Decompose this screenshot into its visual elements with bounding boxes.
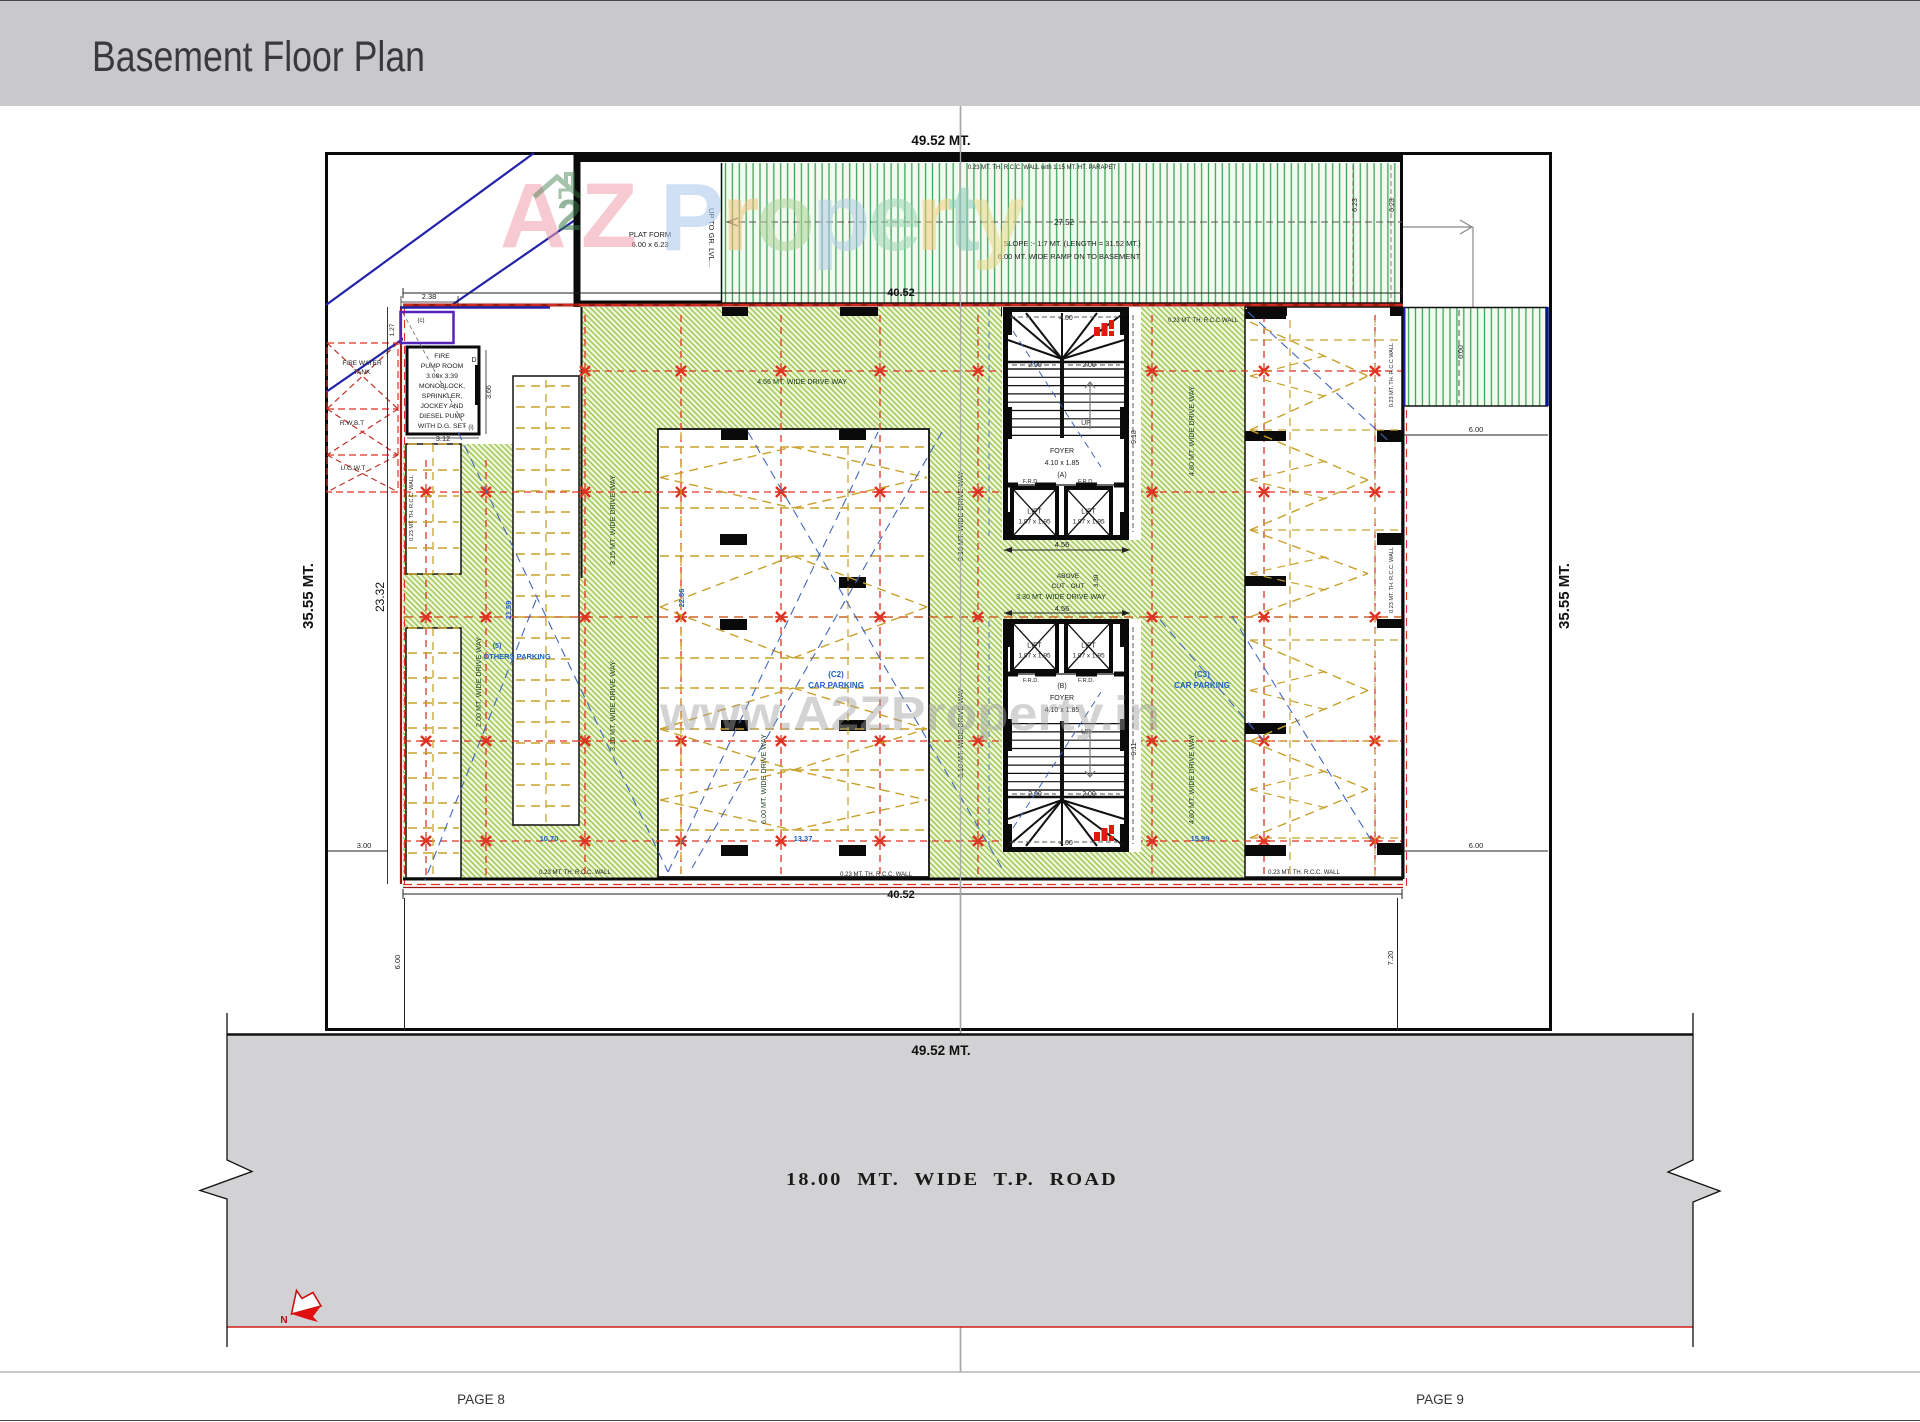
- svg-text:y: y: [972, 164, 1025, 271]
- svg-text:4.00: 4.00: [1059, 840, 1073, 847]
- svg-text:2.00: 2.00: [1082, 362, 1096, 369]
- svg-text:JOCKEY AND: JOCKEY AND: [421, 403, 464, 410]
- svg-text:P: P: [660, 164, 724, 271]
- svg-text:40.52: 40.52: [887, 889, 915, 901]
- svg-text:F.R.D.: F.R.D.: [1078, 678, 1094, 684]
- svg-text:2.00: 2.00: [1082, 791, 1096, 798]
- svg-text:6.00: 6.00: [1469, 841, 1484, 850]
- svg-text:9.11: 9.11: [1131, 742, 1138, 755]
- svg-text:3.66: 3.66: [486, 385, 493, 399]
- svg-text:U.G.W.T: U.G.W.T: [341, 465, 366, 472]
- svg-text:13.37: 13.37: [794, 834, 813, 843]
- svg-text:o: o: [756, 164, 815, 271]
- svg-text:1.27: 1.27: [389, 323, 396, 336]
- svg-text:(c): (c): [418, 318, 425, 324]
- svg-text:3.12: 3.12: [436, 434, 451, 443]
- svg-text:0.23 MT. TH. R.C.C. WALL: 0.23 MT. TH. R.C.C. WALL: [539, 870, 611, 876]
- svg-text:0.23 MT. TH. R.C.C. WALL: 0.23 MT. TH. R.C.C. WALL: [1268, 870, 1340, 876]
- svg-text:3.15 MT. WIDE DRIVE WAY: 3.15 MT. WIDE DRIVE WAY: [608, 475, 617, 565]
- svg-text:4.56: 4.56: [1055, 604, 1070, 613]
- svg-text:(i): (i): [468, 425, 473, 431]
- svg-text:4.60 MT. WIDE DRIVE WAY: 4.60 MT. WIDE DRIVE WAY: [1187, 386, 1196, 476]
- svg-text:1.97 x 1.95: 1.97 x 1.95: [1072, 519, 1105, 526]
- svg-text:PAGE 8: PAGE 8: [457, 1392, 505, 1407]
- svg-text:6.00: 6.00: [1458, 345, 1465, 359]
- svg-text:23.32: 23.32: [373, 582, 387, 612]
- svg-text:ABOVE: ABOVE: [1057, 573, 1080, 580]
- svg-text:FIRE WATER: FIRE WATER: [342, 360, 382, 367]
- svg-text:3.00x 3.39: 3.00x 3.39: [426, 373, 458, 380]
- svg-text:F.R.D.: F.R.D.: [1078, 479, 1094, 485]
- svg-text:WITH D.G. SET: WITH D.G. SET: [418, 423, 466, 430]
- svg-text:27.52: 27.52: [1054, 218, 1075, 227]
- svg-text:e: e: [868, 164, 921, 271]
- svg-text:3.30 MT. WIDE DRIVE WAY: 3.30 MT. WIDE DRIVE WAY: [1016, 592, 1106, 601]
- svg-text:21.59: 21.59: [504, 601, 513, 620]
- svg-text:4.00: 4.00: [1059, 315, 1073, 322]
- svg-text:Z: Z: [581, 165, 637, 267]
- svg-text:15.99: 15.99: [1191, 834, 1210, 843]
- svg-text:UP: UP: [1081, 420, 1091, 427]
- svg-text:0.23 MT. TH. R.C.C. WALL: 0.23 MT. TH. R.C.C. WALL: [840, 872, 912, 878]
- svg-text:CAR PARKING: CAR PARKING: [1174, 681, 1230, 690]
- svg-text:LIFT: LIFT: [1027, 643, 1042, 650]
- svg-text:0.23 MT. TH. R.C.C. WALL: 0.23 MT. TH. R.C.C. WALL: [409, 475, 415, 541]
- svg-text:(C3): (C3): [1194, 670, 1210, 679]
- svg-text:r: r: [722, 164, 759, 271]
- svg-text:1.97 x 1.95: 1.97 x 1.95: [1018, 519, 1051, 526]
- svg-text:F.R.D.: F.R.D.: [1023, 678, 1039, 684]
- svg-text:R.W.B.T: R.W.B.T: [340, 420, 364, 427]
- svg-text:4.56 MT. WIDE DRIVE WAY: 4.56 MT. WIDE DRIVE WAY: [757, 377, 847, 386]
- svg-text:6.23: 6.23: [1389, 198, 1396, 212]
- svg-text:LIFT: LIFT: [1081, 643, 1096, 650]
- svg-text:LIFT: LIFT: [1081, 509, 1096, 516]
- svg-text:F.R.D.: F.R.D.: [1023, 479, 1039, 485]
- svg-text:Basement Floor Plan: Basement Floor Plan: [92, 33, 425, 81]
- svg-text:CUT - OUT: CUT - OUT: [1052, 583, 1085, 590]
- svg-text:FOYER: FOYER: [1050, 448, 1074, 455]
- svg-text:6.00: 6.00: [393, 955, 402, 970]
- svg-text:4.60 MT. WIDE DRIVE WAY: 4.60 MT. WIDE DRIVE WAY: [1187, 734, 1196, 824]
- svg-text:0.23 MT. TH. R.C.C. WALL: 0.23 MT. TH. R.C.C. WALL: [1389, 547, 1395, 613]
- svg-text:SPRINKLER,: SPRINKLER,: [422, 393, 463, 400]
- svg-text:N: N: [280, 1315, 287, 1326]
- svg-text:MONOBLOCK,: MONOBLOCK,: [419, 383, 465, 390]
- svg-text:22.86: 22.86: [677, 589, 686, 608]
- svg-text:4.10 x 1.85: 4.10 x 1.85: [1045, 460, 1080, 467]
- svg-text:3.30: 3.30: [1093, 574, 1100, 587]
- svg-text:D: D: [471, 357, 476, 364]
- svg-text:0.23 MT. TH. R.C.C WALL: 0.23 MT. TH. R.C.C WALL: [1389, 343, 1395, 407]
- svg-text:1.97 x 1.95: 1.97 x 1.95: [1018, 653, 1051, 660]
- svg-text:35.55 MT.: 35.55 MT.: [300, 563, 317, 629]
- svg-text:(5): (5): [493, 643, 502, 650]
- svg-text:(A): (A): [1057, 472, 1066, 479]
- svg-text:p: p: [812, 164, 871, 271]
- svg-text:49.52 MT.: 49.52 MT.: [911, 133, 970, 148]
- svg-text:(C2): (C2): [828, 670, 844, 679]
- svg-text:3.00: 3.00: [357, 841, 372, 850]
- svg-text:7.20: 7.20: [1386, 951, 1395, 966]
- svg-text:40.52: 40.52: [887, 287, 915, 299]
- svg-text:35.55 MT.: 35.55 MT.: [1556, 563, 1573, 629]
- svg-text:PUMP ROOM: PUMP ROOM: [421, 363, 464, 370]
- svg-text:www.A2ZProperty.in: www.A2ZProperty.in: [659, 688, 1160, 741]
- svg-text:FIRE: FIRE: [434, 353, 450, 360]
- svg-text:49.52 MT.: 49.52 MT.: [911, 1043, 970, 1058]
- svg-text:TANK: TANK: [354, 369, 372, 376]
- svg-text:10.70: 10.70: [540, 834, 559, 843]
- svg-text:2.00 MT. WIDE DRIVE WAY: 2.00 MT. WIDE DRIVE WAY: [474, 637, 483, 727]
- svg-text:3.15 MT. WIDE DRIVE WAY: 3.15 MT. WIDE DRIVE WAY: [608, 661, 617, 751]
- svg-text:0.23 MT. TH. R.C.C WALL: 0.23 MT. TH. R.C.C WALL: [1168, 318, 1239, 324]
- svg-text:4.56: 4.56: [1055, 540, 1070, 549]
- svg-text:PAGE 9: PAGE 9: [1416, 1392, 1464, 1407]
- svg-text:9.18: 9.18: [1131, 430, 1138, 444]
- svg-text:18.00 MT. WIDE T.P. ROAD: 18.00 MT. WIDE T.P. ROAD: [786, 1169, 1118, 1189]
- svg-text:6.00 MT. WIDE DRIVE WAY: 6.00 MT. WIDE DRIVE WAY: [759, 734, 768, 824]
- svg-text:1.97 x 1.95: 1.97 x 1.95: [1072, 653, 1105, 660]
- svg-text:LIFT: LIFT: [1027, 509, 1042, 516]
- svg-text:2.38: 2.38: [422, 292, 437, 301]
- svg-text:6.00: 6.00: [1469, 425, 1484, 434]
- svg-text:OTHERS PARKING: OTHERS PARKING: [483, 652, 551, 661]
- svg-text:6.23: 6.23: [1352, 198, 1359, 212]
